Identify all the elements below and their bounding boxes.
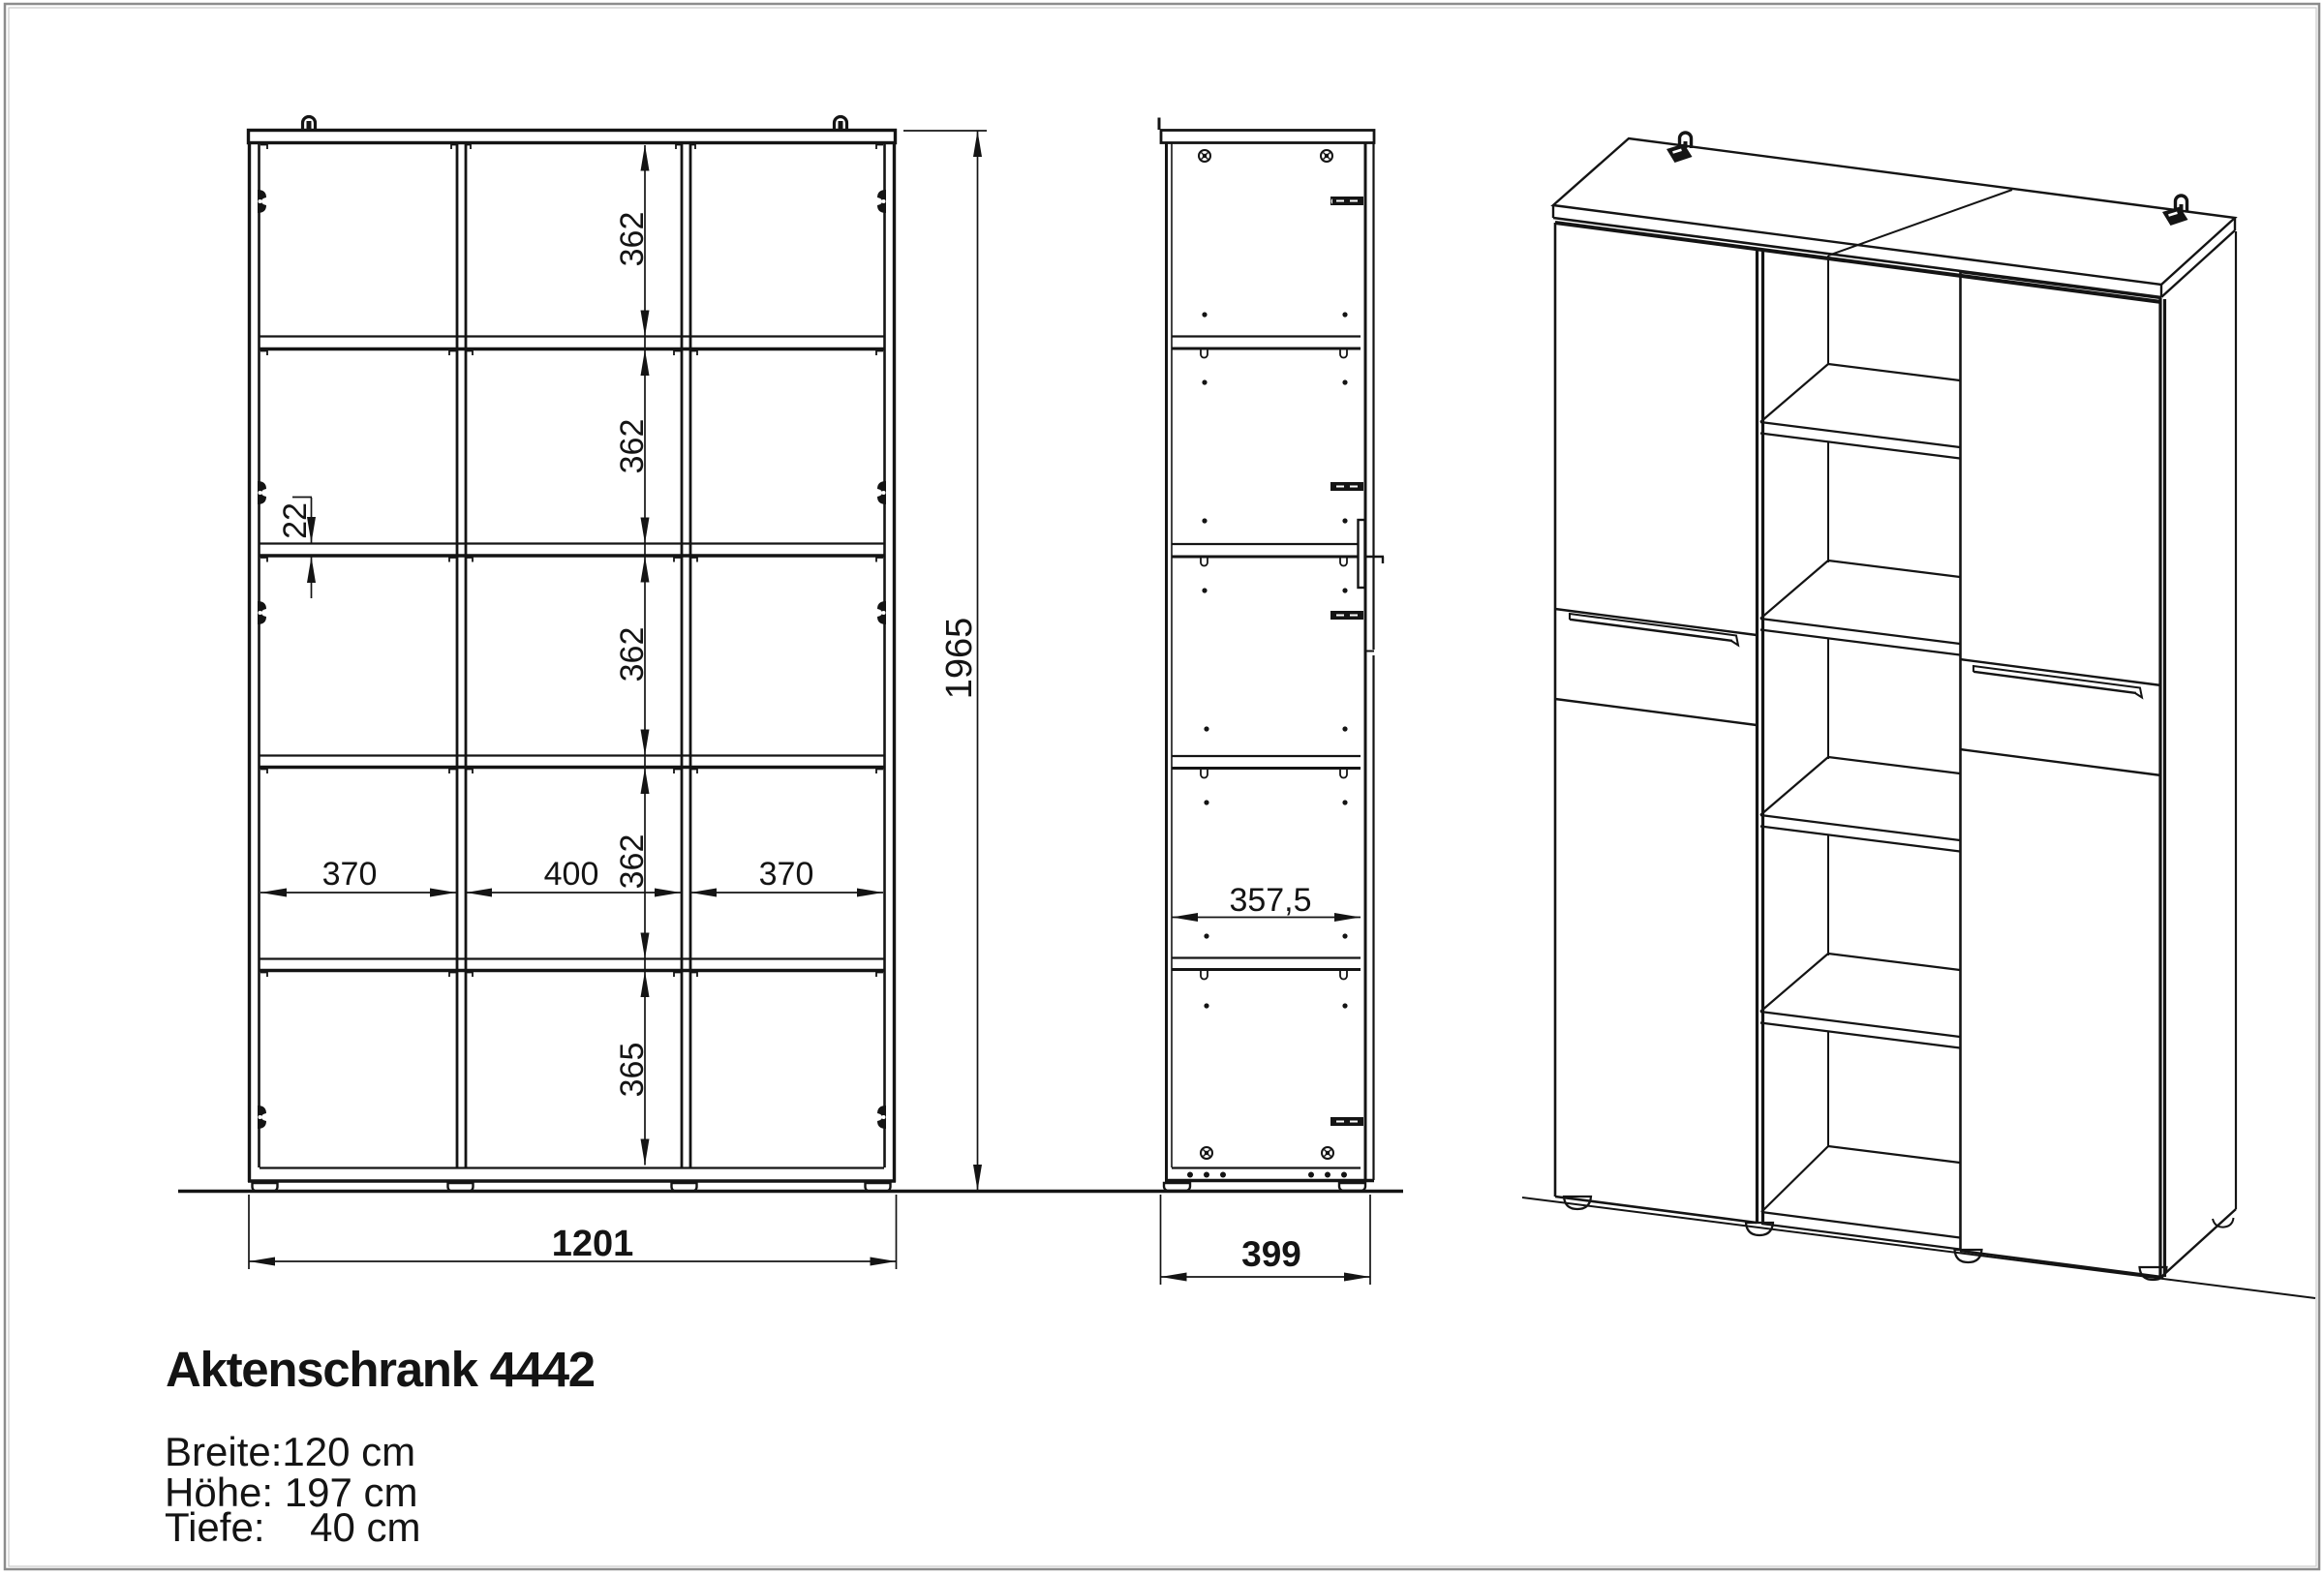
svg-text:370: 370 [759, 856, 814, 893]
svg-text:365: 365 [614, 1043, 651, 1098]
svg-text:Aktenschrank 4442: Aktenschrank 4442 [166, 1342, 595, 1397]
svg-text:362: 362 [614, 419, 651, 474]
svg-text:22: 22 [277, 502, 314, 539]
svg-text:1965: 1965 [939, 618, 980, 700]
svg-text:362: 362 [614, 834, 651, 890]
svg-text:Tiefe: 40 cm: Tiefe: 40 cm [165, 1504, 421, 1550]
svg-text:Breite:120 cm: Breite:120 cm [165, 1429, 415, 1474]
svg-text:357,5: 357,5 [1229, 882, 1311, 919]
svg-text:399: 399 [1241, 1234, 1301, 1274]
svg-text:400: 400 [544, 856, 599, 893]
svg-text:1201: 1201 [552, 1224, 634, 1264]
svg-text:362: 362 [614, 212, 651, 267]
svg-text:362: 362 [614, 627, 651, 682]
svg-text:370: 370 [322, 856, 378, 893]
